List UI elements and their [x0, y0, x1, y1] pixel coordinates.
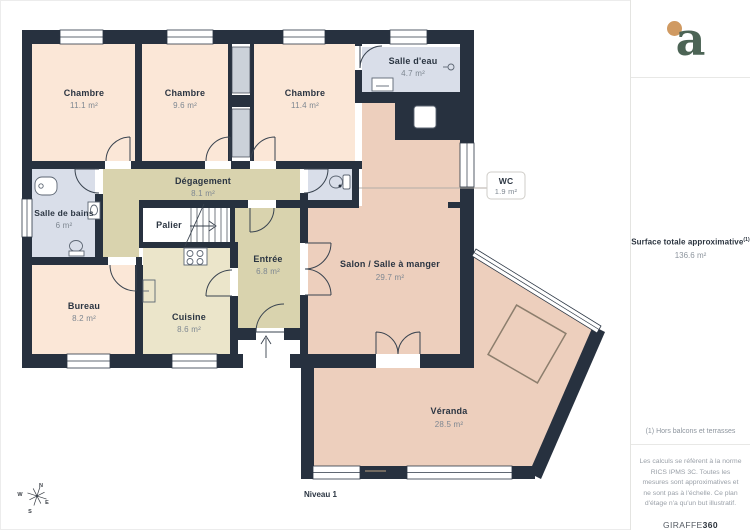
compass-west: W [17, 492, 23, 498]
footnote-ref: (1) [743, 237, 749, 243]
logo-letter: a [676, 12, 706, 66]
label-chambre-1: Chambre [64, 88, 104, 98]
svg-text:8.2 m²: 8.2 m² [72, 314, 96, 323]
svg-text:28.5 m²: 28.5 m² [435, 420, 464, 429]
svg-text:11.4 m²: 11.4 m² [291, 101, 319, 110]
brand-name: GIRAFFE [663, 520, 703, 530]
label-salon: Salon / Salle à manger [340, 259, 440, 269]
svg-text:4.7 m²: 4.7 m² [401, 69, 425, 78]
wc-label: WC [499, 176, 514, 186]
level-label: Niveau 1 [304, 490, 337, 499]
svg-text:8.1 m²: 8.1 m² [191, 189, 215, 198]
label-salle-de-bains: Salle de bains [34, 208, 94, 218]
label-entree: Entrée [253, 254, 282, 264]
compass-rose-icon: N W E S [17, 483, 49, 515]
closet-door-panel [232, 109, 250, 157]
legal-section: Les calculs se réfèrent à la norme RICS … [631, 445, 750, 530]
compass-east: E [45, 500, 49, 506]
compass-south: S [28, 509, 32, 515]
chimney-icon [414, 106, 436, 128]
wc-area: 1.9 m² [495, 187, 518, 196]
brand-suffix: 360 [703, 520, 718, 530]
salle-deau-sink-icon [372, 78, 393, 91]
label-veranda: Véranda [431, 406, 469, 416]
label-degagement: Dégagement [175, 176, 231, 186]
agency-logo: a [676, 16, 706, 62]
brand-logo: GIRAFFE360 [639, 519, 742, 530]
floorplan-svg: WC 1.9 m² Chambre 11.1 m² Chambre 9.6 m²… [0, 0, 630, 530]
surface-total-value: 136.6 m² [675, 251, 707, 260]
label-palier: Palier [156, 220, 182, 230]
svg-text:11.1 m²: 11.1 m² [70, 101, 98, 110]
label-bureau: Bureau [68, 301, 100, 311]
degagement-column [103, 200, 139, 257]
label-cuisine: Cuisine [172, 312, 206, 322]
info-sidebar: a Surface totale approximative(1) 136.6 … [630, 0, 750, 530]
svg-text:6.8 m²: 6.8 m² [256, 267, 280, 276]
svg-text:9.6 m²: 9.6 m² [173, 101, 197, 110]
wc-toilet-icon [343, 175, 350, 189]
footnote: (1) Hors balcons et terrasses [631, 419, 750, 445]
svg-text:6 m²: 6 m² [56, 221, 73, 230]
compass-north: N [39, 483, 43, 489]
label-salle-deau: Salle d'eau [389, 56, 438, 66]
logo-section: a [631, 0, 750, 78]
label-chambre-2: Chambre [165, 88, 205, 98]
legal-disclaimer: Les calculs se réfèrent à la norme RICS … [639, 457, 742, 510]
bathtub-icon [35, 177, 57, 195]
svg-text:29.7 m²: 29.7 m² [376, 273, 405, 282]
label-chambre-3: Chambre [285, 88, 325, 98]
surface-total-title: Surface totale approximative(1) [631, 237, 750, 247]
floorplan-page: WC 1.9 m² Chambre 11.1 m² Chambre 9.6 m²… [0, 0, 750, 530]
svg-text:8.6 m²: 8.6 m² [177, 325, 201, 334]
closet-door-panel [232, 47, 250, 93]
surface-section: Surface totale approximative(1) 136.6 m² [631, 78, 750, 419]
